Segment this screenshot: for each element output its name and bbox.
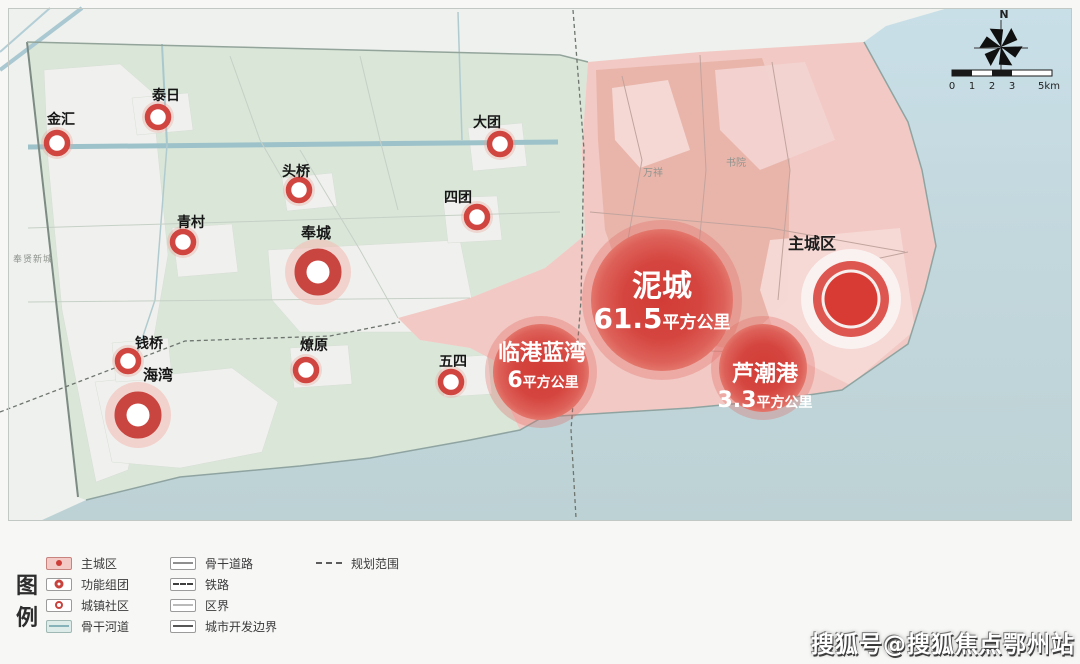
legend-label: 规划范围 [351,555,399,572]
legend-item-railway: 铁路 [170,577,229,591]
compass-north-label: N [999,8,1008,21]
district-name: 芦潮港 [732,362,799,387]
legend-item-cluster: 功能组团 [46,577,129,591]
legend-item-plan-scope: 规划范围 [316,556,399,570]
legend-item-community: 城镇社区 [46,598,129,612]
community-swatch-icon [46,599,72,612]
faint-town-label: 万祥 [643,166,663,179]
legend-label: 功能组团 [81,576,129,593]
district-name: 临港蓝湾 [498,340,586,366]
cluster-marker [105,382,171,448]
planning-map-page: 主城区 奉城 海湾 金汇 泰日 头桥 青村 大团 四团 钱桥 [0,0,1080,664]
town-label: 泰日 [151,87,180,104]
district-circle-lingang-lanwan [485,316,597,428]
map-canvas: 主城区 奉城 海湾 金汇 泰日 头桥 青村 大团 四团 钱桥 [0,0,1080,664]
river-swatch-icon [46,620,72,633]
district-name: 泥城 [632,269,692,304]
faint-area-label: 奉贤新城 [13,253,53,265]
main-city-label: 主城区 [788,234,836,253]
legend-label: 骨干河道 [81,618,129,635]
faint-town-label: 书院 [726,156,746,169]
town-label: 四团 [444,190,472,206]
town-label: 钱桥 [135,335,164,352]
dev-edge-swatch-icon [170,620,196,633]
legend-label: 铁路 [205,576,229,593]
cluster-label: 海湾 [143,366,173,384]
plan-scope-swatch-icon [316,557,342,570]
town-label: 五四 [439,354,467,370]
legend-label: 骨干道路 [205,555,253,572]
scale-tick: 0 [949,81,955,92]
cluster-marker [285,239,351,305]
scale-tick: 2 [989,81,995,92]
legend-item-district-border: 区界 [170,598,229,612]
watermark: 搜狐号@搜狐焦点鄂州站 [811,625,1075,659]
cluster-label: 奉城 [300,224,331,242]
scale-tick: 5km [1038,81,1060,92]
town-label: 头桥 [282,163,311,180]
legend-label: 主城区 [81,555,117,572]
scale-tick: 3 [1009,81,1015,92]
railway-swatch-icon [170,578,196,591]
legend-item-dev-edge: 城市开发边界 [170,619,277,633]
town-label: 燎原 [300,337,328,354]
district-border-swatch-icon [170,599,196,612]
legend-label: 城市开发边界 [205,618,277,635]
main-city-marker [801,249,901,349]
legend-title-char: 例 [16,600,38,632]
legend-item-main-city: 主城区 [46,556,117,570]
legend-title-char: 图 [16,568,38,600]
cluster-swatch-icon [46,578,72,591]
legend-item-road: 骨干道路 [170,556,253,570]
legend-label: 区界 [205,597,229,614]
main-city-swatch-icon [46,557,72,570]
legend-label: 城镇社区 [81,597,129,614]
town-label: 大团 [473,114,501,131]
scale-tick: 1 [969,81,975,92]
road-swatch-icon [170,557,196,570]
legend-item-river: 骨干河道 [46,619,129,633]
town-label: 金汇 [46,111,75,128]
town-label: 青村 [177,214,205,231]
